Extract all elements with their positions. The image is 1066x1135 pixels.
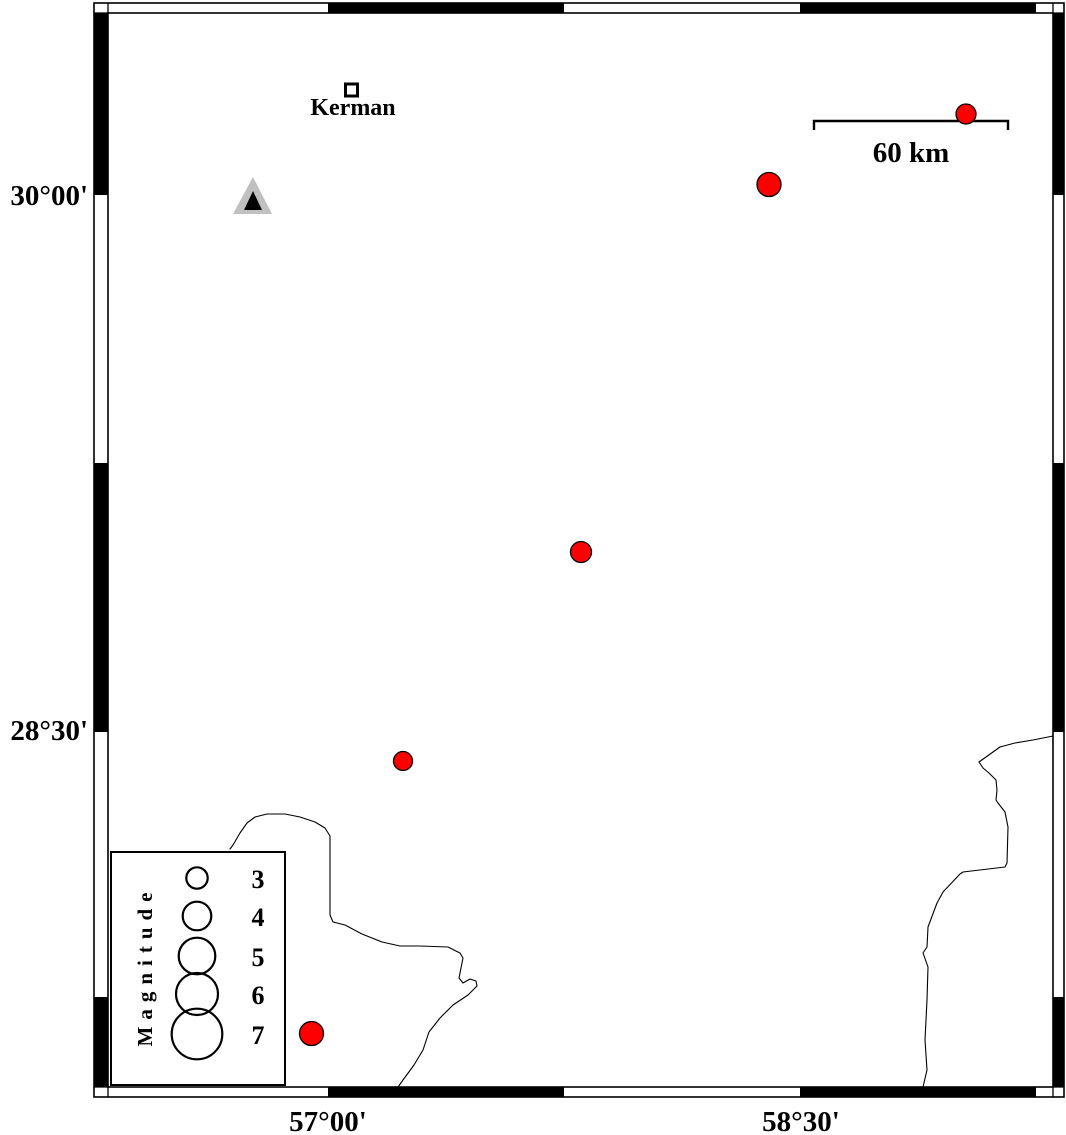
frame-tick-segment-top [800, 3, 1036, 13]
legend-magnitude-4: 4 [252, 903, 265, 932]
earthquake-marker [300, 1022, 324, 1046]
earthquake-marker [394, 752, 413, 771]
frame-tick-segment-top [328, 3, 564, 13]
frame-tick-segment-left [94, 997, 108, 1087]
earthquake-marker [956, 104, 976, 124]
frame-tick-segment-bottom [800, 1087, 1036, 1097]
coastlines-layer [230, 736, 1053, 1087]
frame-tick-segment-left [94, 463, 108, 732]
lat-label-28-30: 28°30' [10, 715, 88, 747]
scale-bar-label: 60 km [873, 137, 950, 169]
coastline-right [923, 736, 1053, 1087]
legend-magnitude-7: 7 [252, 1021, 265, 1050]
map-canvas: 30°00' 28°30' 57°00' 58°30' 60 km Kerman… [0, 0, 1066, 1135]
lon-label-58-30: 58°30' [762, 1106, 840, 1135]
scale-bar-layer [814, 121, 1008, 130]
city-label-kerman: Kerman [310, 95, 395, 121]
legend-magnitude-5: 5 [252, 943, 265, 972]
frame-tick-segment-bottom [328, 1087, 564, 1097]
lat-label-30-00: 30°00' [10, 180, 88, 212]
frame-tick-segment-left [94, 13, 108, 195]
lon-label-57-00: 57°00' [289, 1106, 367, 1135]
legend-title: Magnitude [133, 885, 157, 1046]
legend-magnitude-3: 3 [252, 865, 265, 894]
frame-tick-segment-right [1053, 13, 1064, 195]
earthquake-marker [571, 542, 592, 563]
legend-magnitude-6: 6 [252, 981, 265, 1010]
seismicity-map-figure: 30°00' 28°30' 57°00' 58°30' 60 km Kerman… [0, 0, 1066, 1135]
frame-tick-segment-right [1053, 997, 1064, 1087]
earthquake-marker [757, 173, 781, 197]
markers-layer [233, 84, 976, 1046]
frame-tick-segment-right [1053, 463, 1064, 732]
scale-bar-bracket [814, 121, 1008, 130]
